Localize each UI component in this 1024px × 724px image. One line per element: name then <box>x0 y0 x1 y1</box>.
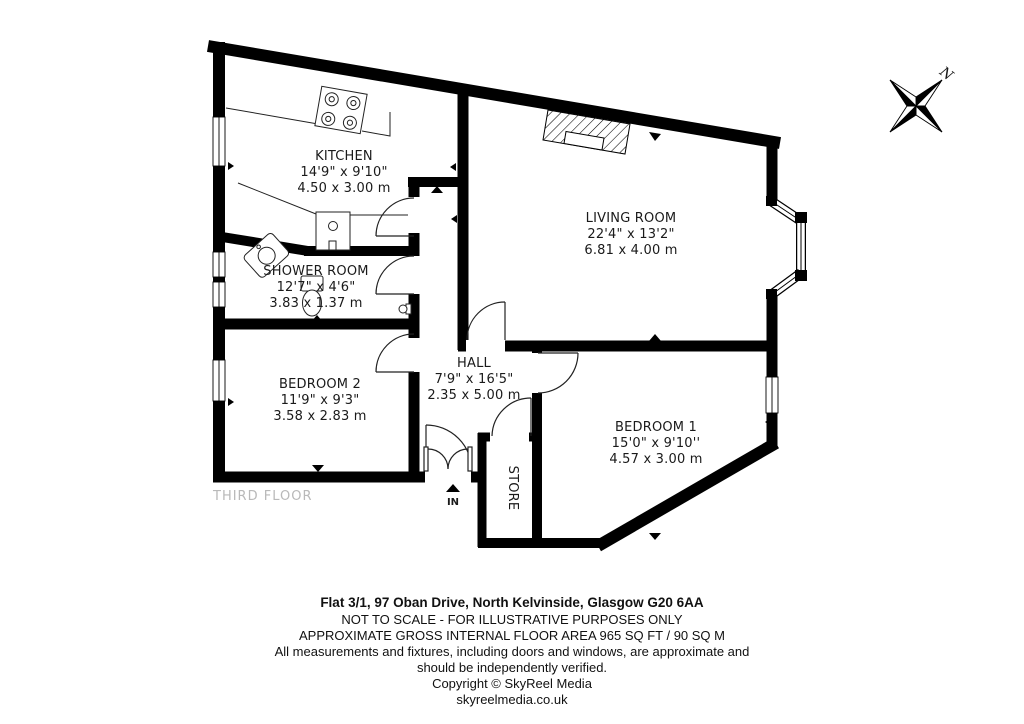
footer-area: APPROXIMATE GROSS INTERNAL FLOOR AREA 96… <box>299 628 725 643</box>
floorplan-page: KITCHEN 14'9" x 9'10" 4.50 x 3.00 m LIVI… <box>0 0 1024 724</box>
svg-text:22'4" x 13'2": 22'4" x 13'2" <box>587 227 674 242</box>
svg-text:2.35 x 5.00 m: 2.35 x 5.00 m <box>427 388 520 403</box>
svg-text:IN: IN <box>447 497 459 508</box>
doors <box>376 198 578 471</box>
svg-text:4.57 x 3.00 m: 4.57 x 3.00 m <box>609 452 702 467</box>
entrance-in-marker: IN <box>446 484 460 508</box>
stove-icon <box>315 86 367 133</box>
svg-text:6.81 x 4.00 m: 6.81 x 4.00 m <box>584 243 677 258</box>
svg-text:12'7" x 4'6": 12'7" x 4'6" <box>277 280 356 295</box>
svg-text:STORE: STORE <box>505 466 520 511</box>
room-label-hall: HALL 7'9" x 16'5" 2.35 x 5.00 m <box>427 356 520 403</box>
floor-label: THIRD FLOOR <box>212 489 312 504</box>
compass-north-label: N <box>935 63 956 84</box>
svg-text:7'9" x 16'5": 7'9" x 16'5" <box>435 372 514 387</box>
entrance-door <box>424 425 472 471</box>
svg-text:4.50 x 3.00 m: 4.50 x 3.00 m <box>297 181 390 196</box>
svg-text:14'9" x 9'10": 14'9" x 9'10" <box>300 165 387 180</box>
svg-text:LIVING ROOM: LIVING ROOM <box>586 211 677 226</box>
room-label-living-room: LIVING ROOM 22'4" x 13'2" 6.81 x 4.00 m <box>584 211 677 258</box>
bay-windows <box>766 196 807 299</box>
room-label-bedroom1: BEDROOM 1 15'0" x 9'10'' 4.57 x 3.00 m <box>609 420 702 467</box>
svg-text:11'9" x 9'3": 11'9" x 9'3" <box>281 393 360 408</box>
wall-top <box>208 46 780 143</box>
svg-text:KITCHEN: KITCHEN <box>315 149 373 164</box>
bedroom1-door <box>538 353 578 393</box>
room-label-kitchen: KITCHEN 14'9" x 9'10" 4.50 x 3.00 m <box>297 149 390 196</box>
living-room-door <box>467 302 505 340</box>
room-label-bedroom2: BEDROOM 2 11'9" x 9'3" 3.58 x 2.83 m <box>273 377 366 424</box>
footer-disclaimer-scale: NOT TO SCALE - FOR ILLUSTRATIVE PURPOSES… <box>341 612 683 627</box>
room-label-shower-room: SHOWER ROOM 12'7" x 4'6" 3.83 x 1.37 m <box>263 264 368 311</box>
svg-text:BEDROOM 1: BEDROOM 1 <box>615 420 697 435</box>
wall-openings <box>408 197 543 483</box>
floorplan-canvas: KITCHEN 14'9" x 9'10" 4.50 x 3.00 m LIVI… <box>0 0 1024 724</box>
room-label-store: STORE <box>505 466 520 511</box>
svg-text:3.58 x 2.83 m: 3.58 x 2.83 m <box>273 409 366 424</box>
window-kitchen <box>213 117 225 166</box>
svg-text:3.83 x 1.37 m: 3.83 x 1.37 m <box>269 296 362 311</box>
compass-rose-icon: N <box>890 63 956 132</box>
footer-address: Flat 3/1, 97 Oban Drive, North Kelvinsid… <box>320 595 704 610</box>
footer-copyright: Copyright © SkyReel Media <box>432 676 593 691</box>
footer-disclaimer-1: All measurements and fixtures, including… <box>275 644 750 659</box>
shower-fixture-icon <box>399 304 411 314</box>
kitchen-counter <box>226 108 390 136</box>
svg-text:BEDROOM 2: BEDROOM 2 <box>279 377 361 392</box>
window-bedroom2 <box>213 360 225 401</box>
svg-text:SHOWER ROOM: SHOWER ROOM <box>263 264 368 279</box>
footer: Flat 3/1, 97 Oban Drive, North Kelvinsid… <box>275 595 750 707</box>
footer-website: skyreelmedia.co.uk <box>456 692 568 707</box>
window-bedroom1 <box>766 377 778 413</box>
store-door <box>492 398 531 436</box>
footer-disclaimer-2: should be independently verified. <box>417 660 607 675</box>
svg-text:15'0" x 9'10'': 15'0" x 9'10'' <box>612 436 701 451</box>
svg-text:HALL: HALL <box>457 356 492 371</box>
